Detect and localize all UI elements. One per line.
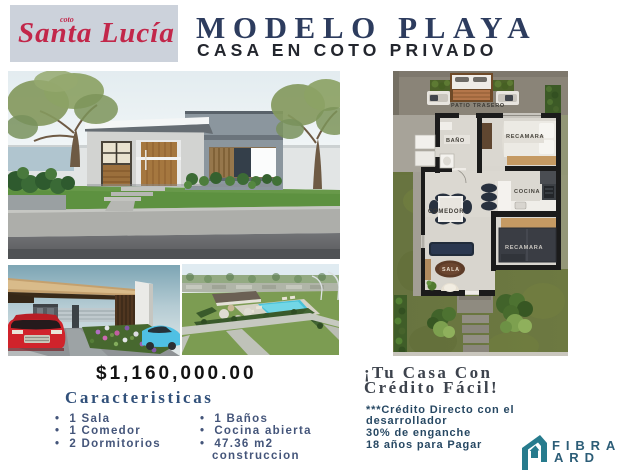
svg-text:COMEDOR: COMEDOR <box>428 209 464 215</box>
svg-text:BAÑO: BAÑO <box>446 137 465 144</box>
svg-text:SALA: SALA <box>442 267 460 273</box>
svg-text:COCINA: COCINA <box>514 189 540 195</box>
svg-text:RECAMARA: RECAMARA <box>506 134 544 140</box>
svg-text:PATIO TRASERO: PATIO TRASERO <box>451 103 505 109</box>
svg-text:ARD: ARD <box>554 450 600 465</box>
svg-text:RECAMARA: RECAMARA <box>505 245 543 251</box>
